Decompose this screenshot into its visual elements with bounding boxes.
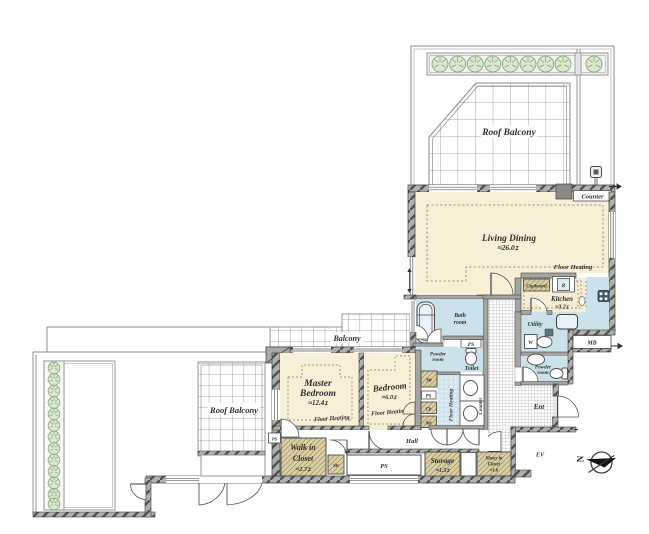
svg-text:Cupboard: Cupboard — [526, 285, 547, 290]
svg-text:Str: Str — [333, 464, 339, 469]
svg-text:Roof Balcony: Roof Balcony — [481, 128, 536, 138]
svg-text:Str: Str — [426, 379, 432, 384]
svg-text:≈26.0ｪ: ≈26.0ｪ — [498, 243, 520, 252]
svg-text:Kitchen: Kitchen — [550, 296, 573, 303]
svg-text:PS: PS — [380, 463, 388, 470]
svg-text:room: room — [432, 357, 443, 363]
svg-text:Floor Heating: Floor Heating — [554, 264, 593, 271]
svg-text:EV: EV — [535, 452, 545, 459]
svg-text:Bath: Bath — [453, 313, 466, 319]
svg-text:≈1.5ｪ: ≈1.5ｪ — [436, 468, 451, 474]
svg-text:Master: Master — [303, 379, 332, 389]
svg-text:room: room — [537, 370, 548, 376]
svg-text:Hall: Hall — [405, 438, 418, 445]
svg-text:Counter: Counter — [479, 397, 484, 414]
svg-text:MB: MB — [586, 341, 596, 347]
svg-text:Toilet: Toilet — [465, 366, 479, 372]
svg-text:room: room — [454, 320, 467, 326]
svg-text:Closet: Closet — [293, 454, 314, 463]
svg-text:N: N — [576, 455, 586, 462]
svg-text:Shoes in: Shoes in — [486, 457, 503, 462]
svg-text:≈6.0ｪ: ≈6.0ｪ — [382, 394, 398, 401]
svg-text:Floor Heating: Floor Heating — [449, 388, 455, 421]
svg-text:PS: PS — [426, 395, 432, 400]
svg-text:Bedroom: Bedroom — [299, 389, 336, 399]
svg-text:Balcony: Balcony — [332, 334, 361, 343]
svg-text:Counter: Counter — [581, 194, 604, 201]
svg-text:≈2.7ｪ: ≈2.7ｪ — [296, 466, 312, 473]
svg-text:Ent: Ent — [533, 403, 546, 411]
svg-text:Roof Balcony: Roof Balcony — [209, 405, 258, 415]
svg-text:Storage: Storage — [431, 456, 455, 465]
svg-text:≈1.6: ≈1.6 — [490, 469, 499, 474]
svg-text:≈12.4ｪ: ≈12.4ｪ — [308, 399, 328, 407]
svg-text:Walk in: Walk in — [290, 443, 316, 452]
svg-text:R: R — [561, 283, 566, 289]
svg-text:Utility: Utility — [528, 322, 543, 328]
svg-text:Closet: Closet — [488, 463, 501, 468]
svg-text:≈3.2ｪ: ≈3.2ｪ — [555, 305, 569, 311]
svg-text:PS: PS — [272, 437, 278, 442]
svg-text:PS: PS — [468, 342, 474, 348]
svg-text:Cb: Cb — [426, 408, 432, 413]
